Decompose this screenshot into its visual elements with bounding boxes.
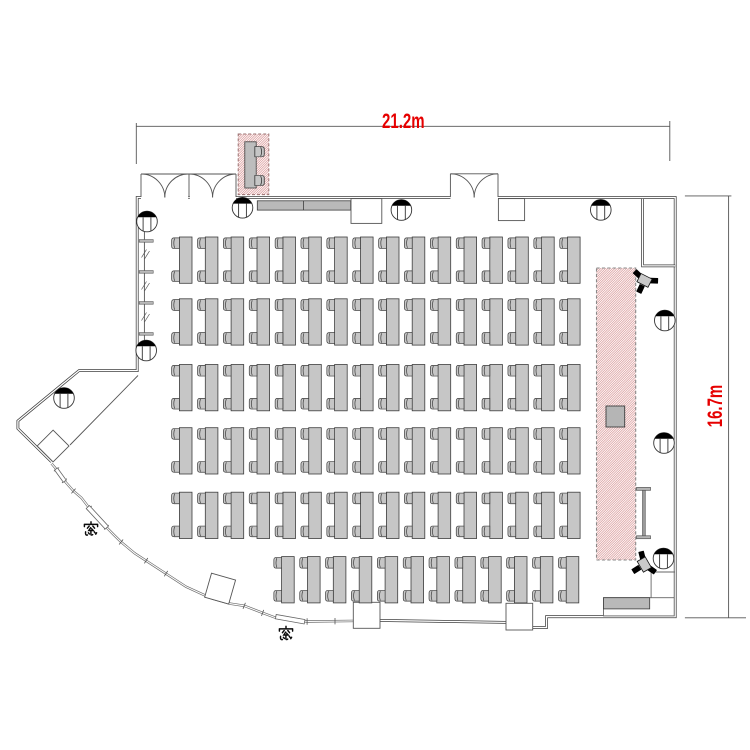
svg-text:16.7m: 16.7m [704, 385, 727, 428]
svg-text:21.2m: 21.2m [382, 110, 425, 133]
